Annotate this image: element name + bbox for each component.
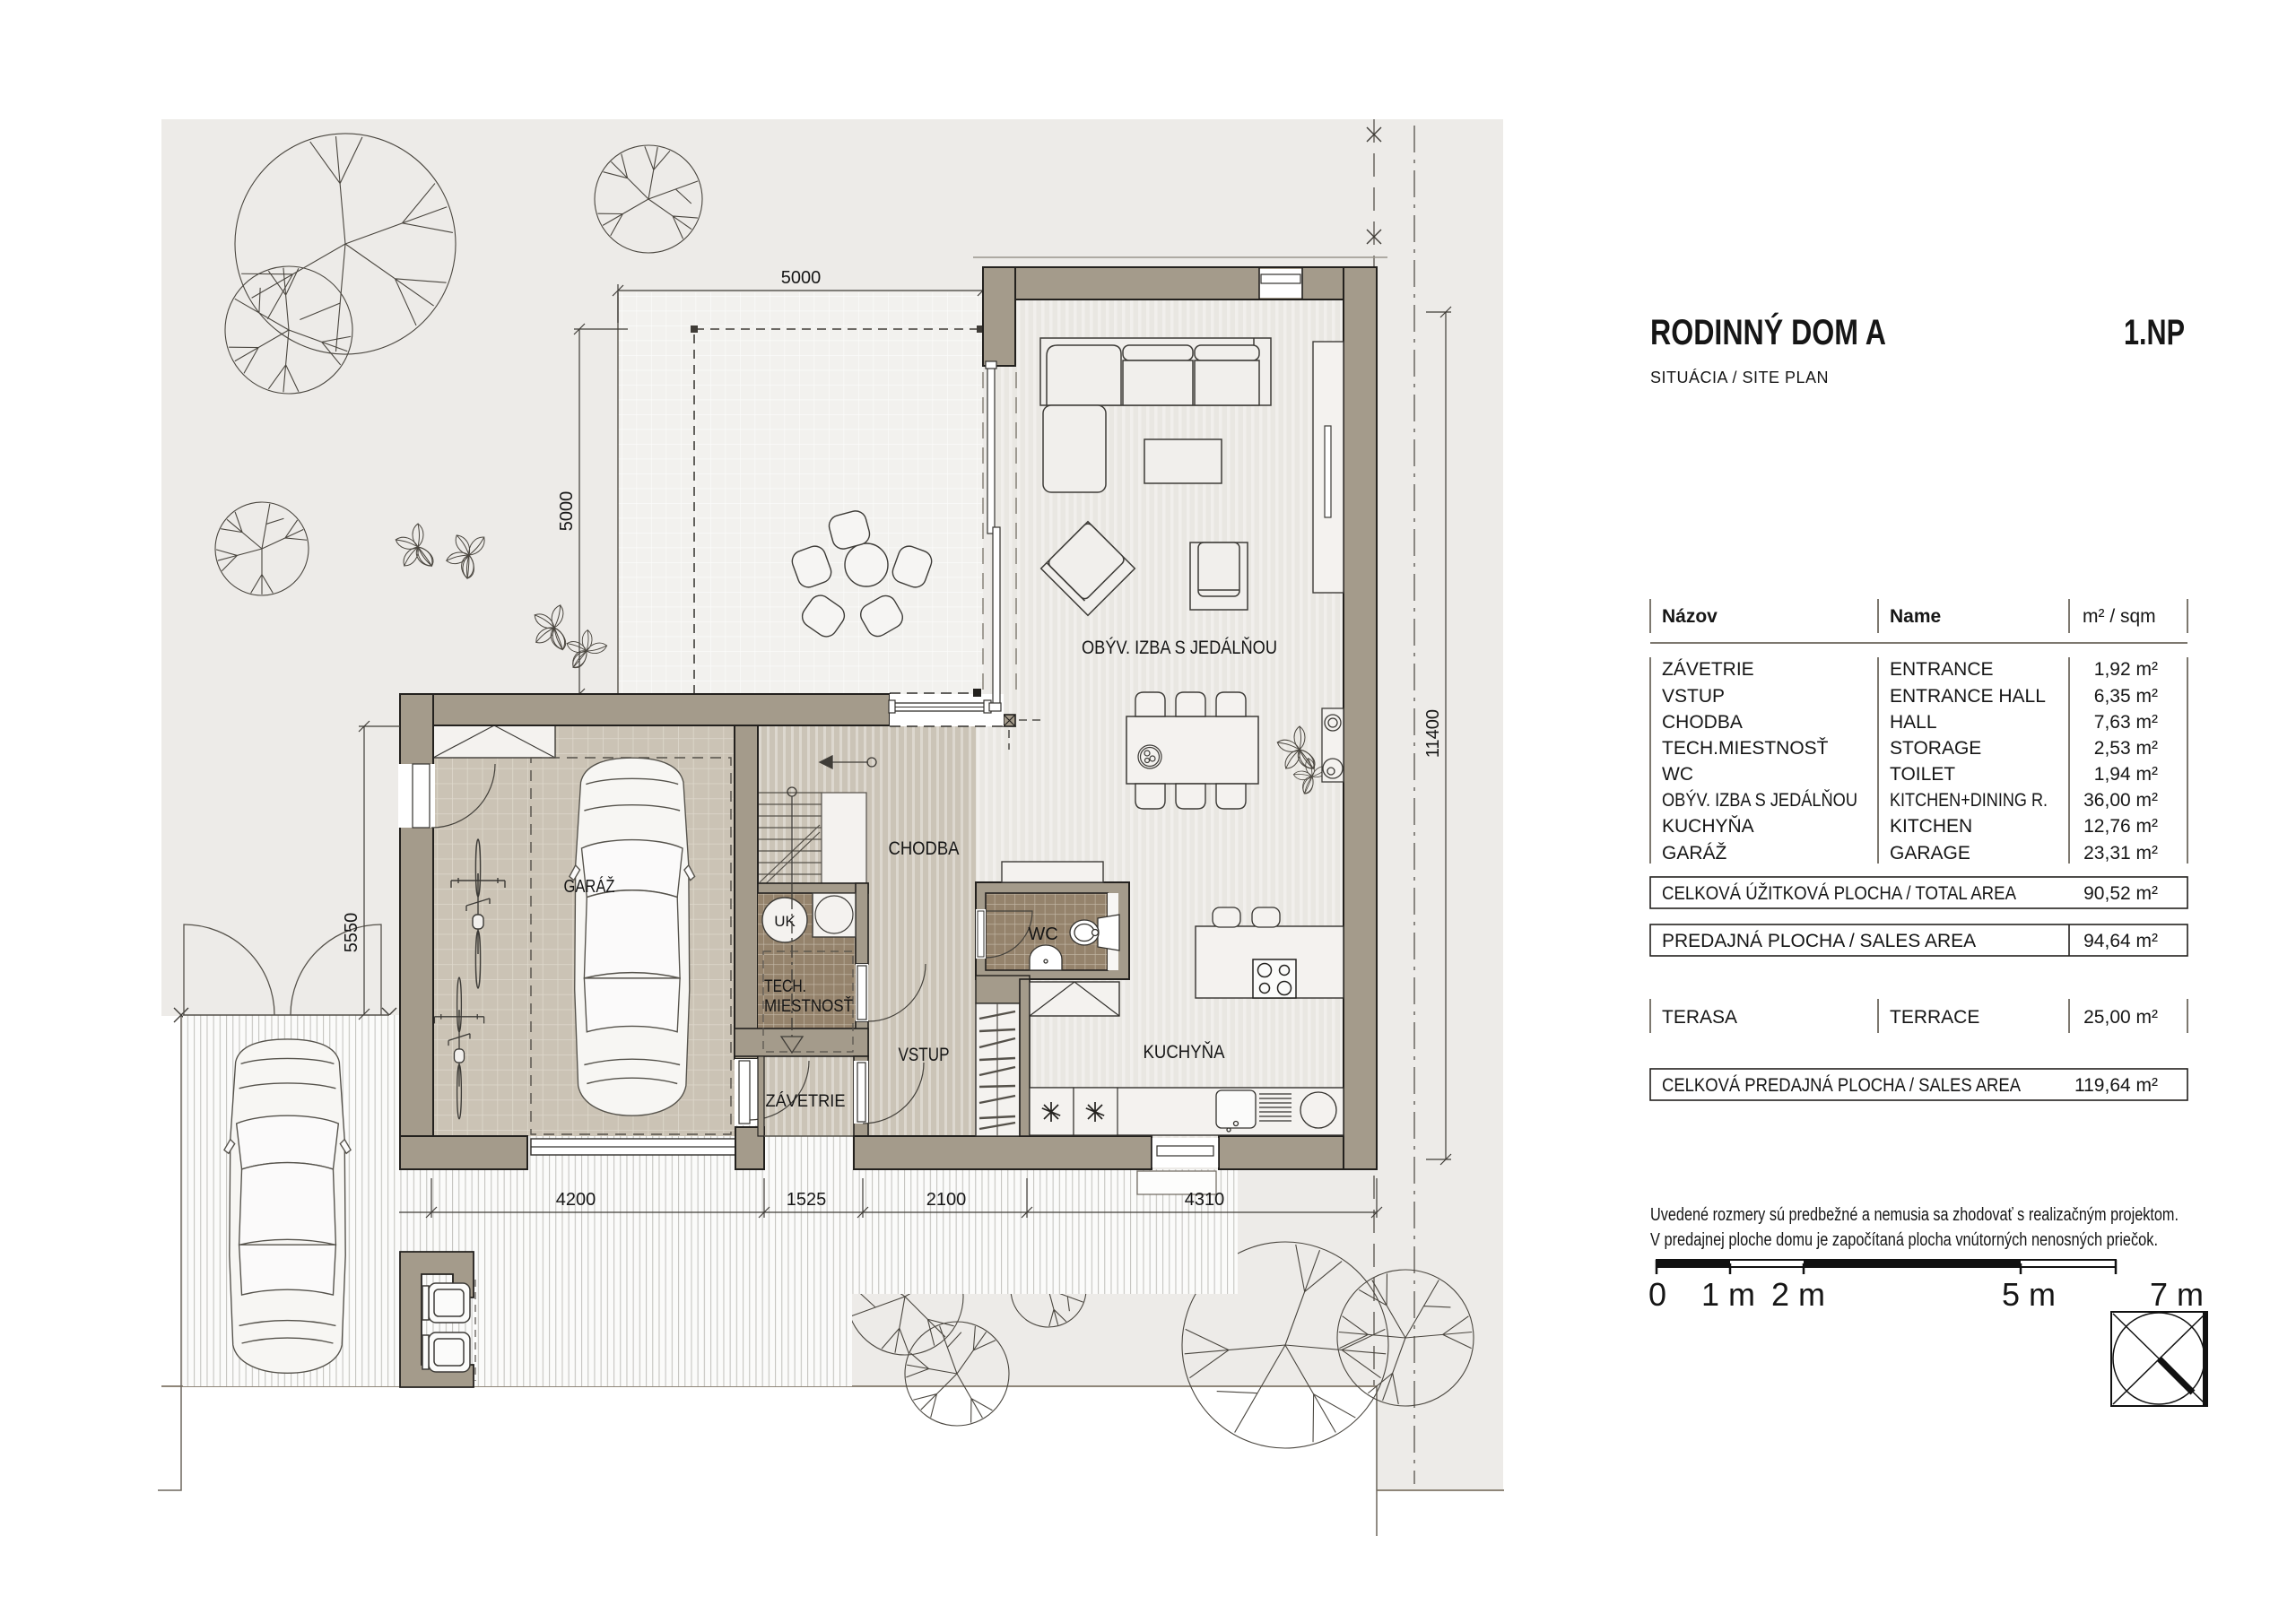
svg-text:5000: 5000 xyxy=(781,268,822,288)
svg-text:5 m: 5 m xyxy=(2002,1276,2056,1313)
svg-text:1525: 1525 xyxy=(787,1190,827,1210)
svg-text:TECH.: TECH. xyxy=(764,977,806,996)
svg-text:2 m: 2 m xyxy=(1771,1276,1825,1313)
svg-text:PREDAJNÁ PLOCHA / SALES AREA: PREDAJNÁ PLOCHA / SALES AREA xyxy=(1662,931,1976,951)
svg-text:KITCHEN+DINING R.: KITCHEN+DINING R. xyxy=(1890,790,2048,811)
svg-text:ZÁVETRIE: ZÁVETRIE xyxy=(1662,659,1754,680)
svg-text:SITUÁCIA / SITE PLAN: SITUÁCIA / SITE PLAN xyxy=(1650,369,1829,386)
svg-text:OBÝV. IZBA S JEDÁLŇOU: OBÝV. IZBA S JEDÁLŇOU xyxy=(1662,790,1857,811)
svg-text:4310: 4310 xyxy=(1185,1190,1225,1210)
svg-text:23,31 m²: 23,31 m² xyxy=(2083,843,2158,864)
svg-text:Uvedené rozmery sú predbežné a: Uvedené rozmery sú predbežné a nemusia s… xyxy=(1650,1205,2179,1225)
svg-text:ZÁVETRIE: ZÁVETRIE xyxy=(766,1092,846,1111)
svg-text:GARÁŽ: GARÁŽ xyxy=(1662,843,1727,864)
svg-text:1.NP: 1.NP xyxy=(2124,313,2185,352)
svg-text:119,64 m²: 119,64 m² xyxy=(2074,1075,2158,1096)
svg-text:TOILET: TOILET xyxy=(1890,764,1955,785)
svg-text:90,52 m²: 90,52 m² xyxy=(2083,883,2158,904)
svg-text:5000: 5000 xyxy=(557,491,577,532)
svg-text:ENTRANCE: ENTRANCE xyxy=(1890,659,1994,680)
svg-text:Name: Name xyxy=(1890,606,1941,627)
svg-text:GARÁŽ: GARÁŽ xyxy=(564,876,615,897)
svg-text:0: 0 xyxy=(1648,1276,1666,1313)
svg-text:TERRACE: TERRACE xyxy=(1890,1007,1979,1028)
svg-text:CELKOVÁ PREDAJNÁ PLOCHA / SALE: CELKOVÁ PREDAJNÁ PLOCHA / SALES AREA xyxy=(1662,1075,2021,1096)
svg-text:1,92 m²: 1,92 m² xyxy=(2094,659,2158,680)
svg-text:CHODBA: CHODBA xyxy=(1662,712,1743,733)
svg-text:Názov: Názov xyxy=(1662,606,1718,627)
svg-text:V predajnej ploche domu je zap: V predajnej ploche domu je započítaná pl… xyxy=(1650,1230,2158,1250)
svg-text:1,94 m²: 1,94 m² xyxy=(2094,764,2158,785)
svg-text:OBÝV. IZBA S JEDÁLŇOU: OBÝV. IZBA S JEDÁLŇOU xyxy=(1082,638,1277,658)
svg-text:36,00 m²: 36,00 m² xyxy=(2083,790,2158,811)
svg-text:KITCHEN: KITCHEN xyxy=(1890,816,1972,837)
svg-text:ENTRANCE HALL: ENTRANCE HALL xyxy=(1890,686,2046,707)
svg-text:WC: WC xyxy=(1662,764,1693,785)
svg-text:7,63 m²: 7,63 m² xyxy=(2094,712,2158,733)
svg-text:UK: UK xyxy=(774,913,796,930)
svg-text:m² / sqm: m² / sqm xyxy=(2083,606,2156,627)
svg-text:2100: 2100 xyxy=(926,1190,967,1210)
svg-text:5550: 5550 xyxy=(342,913,361,953)
svg-text:RODINNÝ DOM A: RODINNÝ DOM A xyxy=(1650,311,1886,352)
svg-text:94,64 m²: 94,64 m² xyxy=(2083,931,2158,951)
svg-text:7 m: 7 m xyxy=(2150,1276,2204,1313)
svg-text:GARAGE: GARAGE xyxy=(1890,843,1970,864)
svg-text:6,35 m²: 6,35 m² xyxy=(2094,686,2158,707)
svg-text:25,00 m²: 25,00 m² xyxy=(2083,1007,2158,1028)
svg-text:KUCHYŇA: KUCHYŇA xyxy=(1144,1042,1225,1063)
svg-text:11400: 11400 xyxy=(1423,709,1443,758)
svg-text:MIESTNOSŤ: MIESTNOSŤ xyxy=(764,996,853,1016)
svg-text:WC: WC xyxy=(1028,924,1057,944)
svg-text:STORAGE: STORAGE xyxy=(1890,738,1981,759)
svg-text:CELKOVÁ ÚŽITKOVÁ PLOCHA / TOTA: CELKOVÁ ÚŽITKOVÁ PLOCHA / TOTAL AREA xyxy=(1662,883,2016,904)
svg-text:HALL: HALL xyxy=(1890,712,1937,733)
svg-text:VSTUP: VSTUP xyxy=(1662,686,1725,707)
svg-text:CHODBA: CHODBA xyxy=(889,838,960,859)
svg-text:VSTUP: VSTUP xyxy=(899,1045,950,1065)
svg-text:1 m: 1 m xyxy=(1701,1276,1755,1313)
svg-text:KUCHYŇA: KUCHYŇA xyxy=(1662,816,1754,837)
svg-text:12,76 m²: 12,76 m² xyxy=(2083,816,2158,837)
svg-text:TERASA: TERASA xyxy=(1662,1007,1737,1028)
svg-text:TECH.MIESTNOSŤ: TECH.MIESTNOSŤ xyxy=(1662,738,1829,759)
svg-text:2,53 m²: 2,53 m² xyxy=(2094,738,2158,759)
svg-text:4200: 4200 xyxy=(556,1190,596,1210)
